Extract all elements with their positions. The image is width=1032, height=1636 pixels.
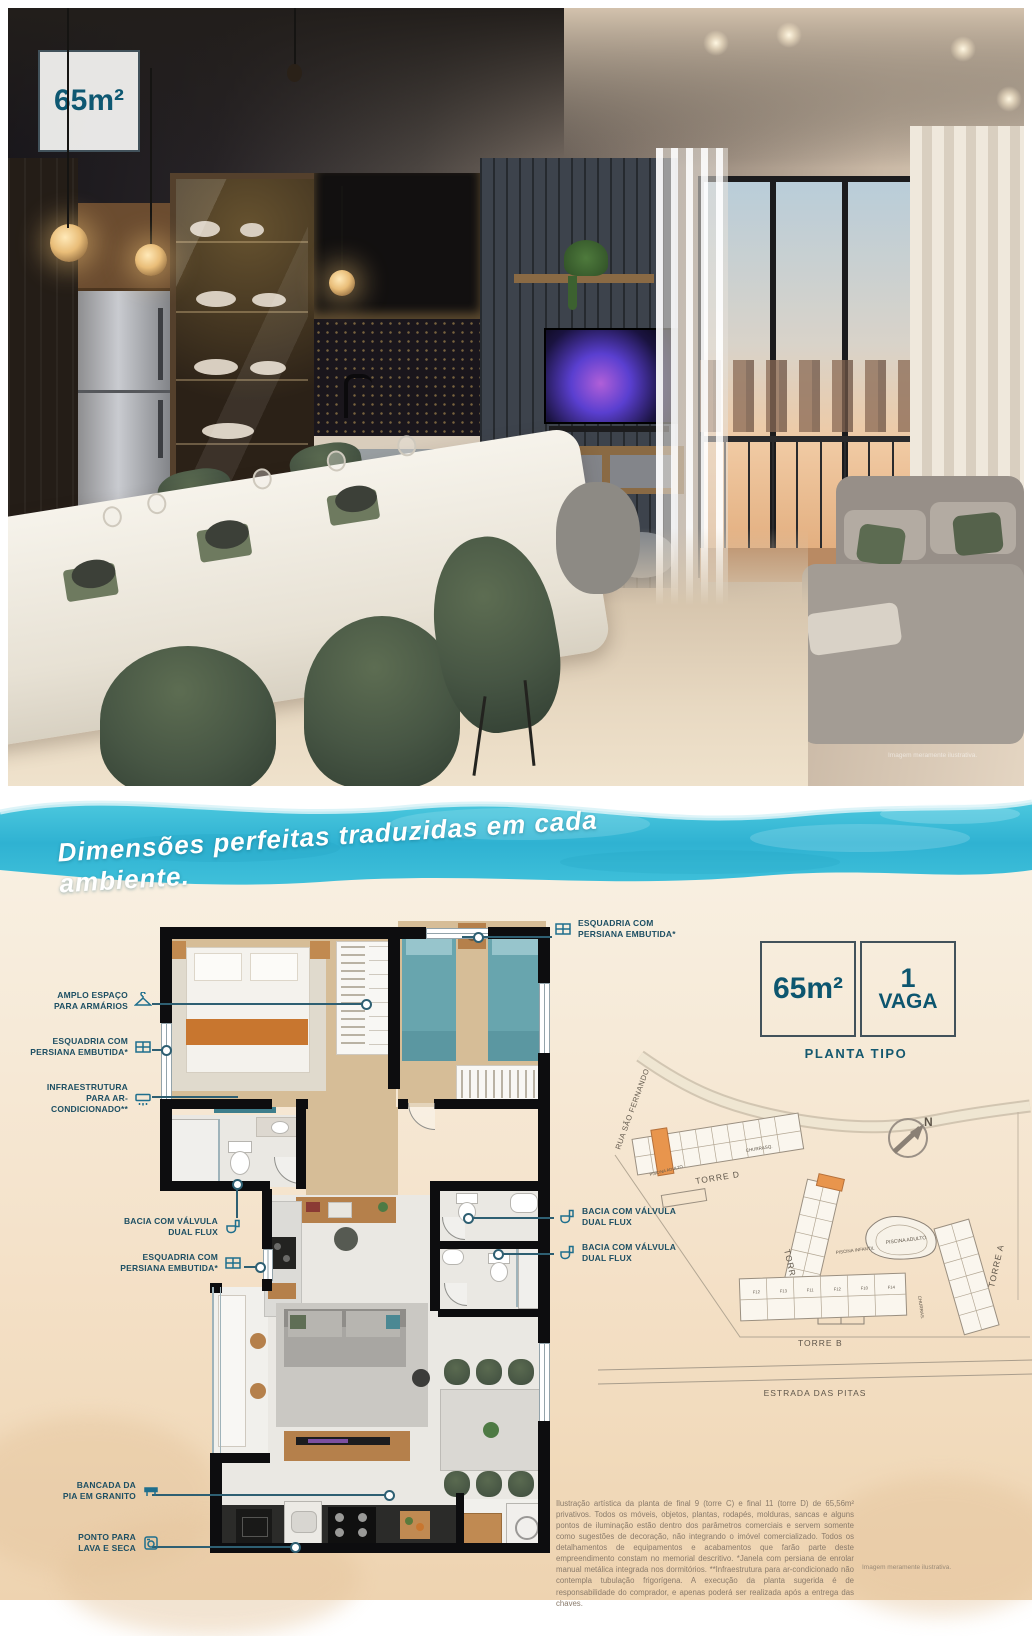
- wall: [430, 1181, 548, 1191]
- leader-dot: [290, 1542, 301, 1553]
- annotation-label: PONTO PARA LAVA E SECA: [18, 1532, 136, 1554]
- wall: [538, 1053, 550, 1343]
- shelf-plant: [564, 240, 608, 276]
- page-disclaimer: Imagem meramente ilustrativa.: [862, 1564, 951, 1571]
- unit-label: F10: [861, 1285, 869, 1290]
- window-right: [539, 983, 550, 1055]
- annotation-label: INFRAESTRUTURA PARA AR-CONDICIONADO**: [10, 1082, 128, 1115]
- ac-icon: [134, 1090, 152, 1108]
- dining-chair-plan: [476, 1471, 502, 1497]
- wall: [262, 1279, 272, 1291]
- torre-d-label: TORRE D: [695, 1169, 741, 1186]
- leader-dot: [493, 1249, 504, 1260]
- leader-dot: [232, 1179, 243, 1190]
- unit-label: F13: [780, 1288, 788, 1293]
- wall: [210, 1453, 270, 1463]
- wall: [210, 1543, 550, 1553]
- spotlight-icon: [950, 36, 976, 62]
- stove: [328, 1507, 376, 1543]
- bbq2-label: CHURRAS.: [917, 1295, 925, 1319]
- sofa-chaise: [802, 564, 1024, 744]
- wall: [388, 927, 400, 1089]
- counter-icon: [142, 1482, 160, 1500]
- spec-area-value: 65m²: [773, 972, 843, 1006]
- legal-disclaimer: Ilustração artística da planta de final …: [556, 1498, 854, 1609]
- burner: [335, 1528, 344, 1537]
- upper-cabinets-dark: [314, 173, 480, 319]
- annotation-window-blind-1: ESQUADRIA COM PERSIANA EMBUTIDA*: [10, 1036, 152, 1058]
- spotlight-icon: [776, 22, 802, 48]
- leader-dot: [384, 1490, 395, 1501]
- photo-disclaimer: Imagem meramente ilustrativa.: [888, 752, 977, 759]
- hanging-vine: [568, 276, 577, 310]
- annotation-label: BANCADA DA PIA EM GRANITO: [18, 1480, 136, 1502]
- washer-door-icon: [515, 1516, 539, 1540]
- burner: [335, 1513, 344, 1522]
- pendant-cord-over-badge: [67, 8, 69, 168]
- pendant-cord: [341, 186, 343, 274]
- tv-console: [284, 1431, 410, 1461]
- pendant-globe-lamp-icon: [329, 270, 355, 296]
- bed-runner-orange: [186, 1019, 308, 1045]
- oven: [236, 1509, 272, 1543]
- spec-parking-box: 1 VAGA: [860, 941, 956, 1037]
- leader-line: [152, 1003, 366, 1005]
- wardrobe-hangers: [461, 1070, 541, 1098]
- green-pillow: [952, 512, 1004, 557]
- wall: [160, 927, 426, 939]
- sink: [271, 1121, 289, 1134]
- leader-line: [152, 1494, 388, 1496]
- pillow: [194, 953, 242, 981]
- bed-foot: [402, 1031, 456, 1061]
- pendant-bulb-icon: [287, 64, 302, 82]
- area-badge: 65m²: [38, 50, 140, 152]
- annotation-label: AMPLO ESPAÇO PARA ARMÁRIOS: [10, 990, 128, 1012]
- wall: [160, 1099, 272, 1109]
- balcony-table: [250, 1383, 266, 1399]
- vegetables: [416, 1523, 424, 1531]
- leader-dot: [255, 1262, 266, 1273]
- home-office-desk: [296, 1197, 396, 1223]
- leader-line: [152, 1096, 238, 1098]
- wine-glass-icon: [146, 492, 168, 516]
- side-table: [412, 1369, 430, 1387]
- leader-line: [152, 1546, 294, 1548]
- annotation-label: ESQUADRIA COM PERSIANA EMBUTIDA*: [100, 1252, 218, 1274]
- leader-line: [236, 1186, 238, 1218]
- annotation-dual-flush-right-2: BACIA COM VÁLVULA DUAL FLUX: [558, 1242, 694, 1264]
- annotation-granite-counter: BANCADA DA PIA EM GRANITO: [18, 1480, 160, 1502]
- oven-door: [242, 1517, 268, 1537]
- glass-reflection: [176, 179, 308, 497]
- toilet-bowl: [490, 1262, 508, 1282]
- wall: [434, 1099, 548, 1109]
- wall: [262, 1189, 272, 1249]
- toilet-bowl: [230, 1151, 250, 1175]
- centerpiece-plant: [483, 1422, 499, 1438]
- master-closet: [336, 941, 396, 1055]
- annotation-label: ESQUADRIA COM PERSIANA EMBUTIDA*: [10, 1036, 128, 1058]
- toilet-icon: [224, 1218, 242, 1236]
- prep-board: [400, 1511, 430, 1539]
- wave-banner: Dimensões perfeitas traduzidas em cada a…: [0, 778, 1032, 910]
- shower-box: [168, 1119, 220, 1185]
- pool-kids-label: PISCINA INFANTIL: [836, 1245, 876, 1255]
- spotlight-icon: [996, 86, 1022, 112]
- burner: [274, 1243, 281, 1250]
- sink-cabinet: [284, 1501, 322, 1549]
- torre-b-label: TORRE B: [798, 1338, 843, 1348]
- compass-n: N: [924, 1115, 933, 1129]
- closet-shelves: [369, 946, 389, 1048]
- wine-glass-icon: [101, 505, 123, 529]
- wall: [438, 1241, 548, 1249]
- spec-parking-label: VAGA: [878, 992, 937, 1012]
- annotation-label: BACIA COM VÁLVULA DUAL FLUX: [582, 1242, 694, 1264]
- pendant-cord: [294, 8, 296, 66]
- vegetables: [405, 1517, 413, 1525]
- dining-chair-plan: [444, 1359, 470, 1385]
- cutting-board: [268, 1283, 296, 1299]
- wall: [160, 1107, 172, 1189]
- teal-pillow: [386, 1315, 400, 1329]
- soundbar: [549, 426, 669, 432]
- wall: [398, 1099, 408, 1109]
- unit-label: F12: [834, 1286, 842, 1291]
- wardrobe: [456, 1065, 548, 1103]
- torre-a-label: TORRE A: [986, 1243, 1006, 1288]
- annotation-ac-infrastructure: INFRAESTRUTURA PARA AR-CONDICIONADO**: [10, 1082, 152, 1115]
- area-badge-text: 65m²: [54, 84, 124, 118]
- fridge-handle: [158, 400, 163, 458]
- annotation-label: BACIA COM VÁLVULA DUAL FLUX: [100, 1216, 218, 1238]
- leader-line: [470, 1217, 554, 1219]
- book: [306, 1202, 320, 1212]
- annotation-dual-flush-left: BACIA COM VÁLVULA DUAL FLUX: [100, 1216, 242, 1238]
- road-label: ESTRADA DAS PITAS: [764, 1388, 867, 1398]
- annotation-window-blind-2: ESQUADRIA COM PERSIANA EMBUTIDA*: [100, 1252, 242, 1274]
- apartment-render-photo: Imagem meramente ilustrativa.: [8, 8, 1024, 786]
- pendant-cord: [150, 68, 152, 250]
- fridge-divider: [78, 390, 174, 393]
- sink: [510, 1193, 538, 1213]
- window-right: [539, 1343, 550, 1423]
- balcony-table: [250, 1333, 266, 1349]
- wall: [430, 1189, 440, 1311]
- annotation-dual-flush-right-1: BACIA COM VÁLVULA DUAL FLUX: [558, 1206, 694, 1228]
- dining-chair-plan: [508, 1359, 534, 1385]
- dining-chair-plan: [508, 1471, 534, 1497]
- annotation-label: ESQUADRIA COM PERSIANA EMBUTIDA*: [578, 918, 690, 940]
- bed-foot: [488, 1031, 542, 1061]
- shower-glass: [218, 1119, 220, 1183]
- spec-parking-value: 1: [900, 966, 915, 992]
- pendant-globe-lamp-icon: [135, 244, 167, 276]
- wall: [456, 1493, 464, 1551]
- unit-label: F12: [753, 1289, 761, 1294]
- leader-dot: [161, 1045, 172, 1056]
- wood-crate: [462, 1513, 502, 1545]
- burner: [283, 1255, 290, 1262]
- city-skyline: [700, 360, 926, 432]
- kitchen-faucet: [344, 374, 372, 418]
- pillow: [250, 953, 298, 981]
- wall: [160, 927, 172, 1023]
- door-swing: [408, 1103, 435, 1130]
- backsplash: [314, 319, 480, 439]
- leader-dot: [361, 999, 372, 1010]
- balcony-planter: [218, 1295, 246, 1447]
- balcony-glass: [212, 1287, 221, 1459]
- toilet-icon: [558, 1244, 576, 1262]
- window-icon: [224, 1254, 242, 1272]
- annotation-label: BACIA COM VÁLVULA DUAL FLUX: [582, 1206, 694, 1228]
- pouf-chair-gray: [556, 482, 640, 594]
- window-icon: [554, 920, 572, 938]
- desk-chair: [334, 1227, 358, 1251]
- fridge-handle: [158, 308, 163, 380]
- closet-hangers: [341, 946, 365, 1048]
- unit-label: F11: [807, 1287, 815, 1292]
- leader-dot: [473, 932, 484, 943]
- tv-screen-glow: [308, 1439, 348, 1443]
- sink-basin: [291, 1511, 317, 1533]
- dining-chair-plan: [476, 1359, 502, 1385]
- sink: [442, 1249, 464, 1265]
- leader-dot: [463, 1213, 474, 1224]
- wall: [160, 1181, 270, 1191]
- pendant-globe-lamp-icon: [50, 224, 88, 262]
- wall: [296, 1099, 308, 1109]
- wall: [296, 1109, 306, 1189]
- laptop: [328, 1202, 352, 1218]
- nightstand: [310, 941, 330, 959]
- shower-glass: [516, 1247, 518, 1307]
- wall: [538, 1421, 550, 1553]
- dining-chair: [100, 646, 276, 786]
- toilet-icon: [558, 1208, 576, 1226]
- desk-plant: [378, 1202, 388, 1212]
- hanger-icon: [134, 992, 152, 1010]
- wall: [210, 1459, 222, 1551]
- leader-line: [500, 1253, 554, 1255]
- spotlight-icon: [703, 30, 729, 56]
- spec-area-box: 65m²: [760, 941, 856, 1037]
- window-icon: [134, 1038, 152, 1056]
- wall: [438, 1309, 548, 1317]
- dining-table-plan: [440, 1389, 542, 1471]
- unit-label: F14: [888, 1284, 896, 1289]
- annotation-window-blind-top: ESQUADRIA COM PERSIANA EMBUTIDA*: [554, 918, 690, 940]
- washer-icon: [142, 1534, 160, 1552]
- annotation-washer-point: PONTO PARA LAVA E SECA: [18, 1532, 160, 1554]
- green-pillow: [290, 1315, 306, 1329]
- green-pillow: [856, 523, 907, 567]
- annotation-ample-closet: AMPLO ESPAÇO PARA ARMÁRIOS: [10, 990, 152, 1012]
- burner: [358, 1528, 367, 1537]
- burner: [358, 1513, 367, 1522]
